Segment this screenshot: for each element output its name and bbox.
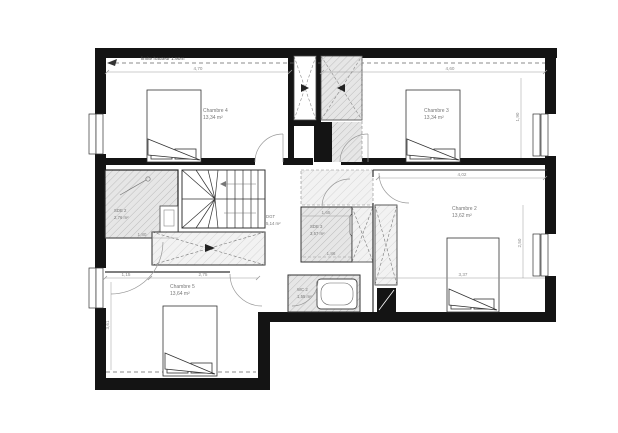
window-left-bottom xyxy=(89,268,96,308)
room-chambre3-area: 13,34 m² xyxy=(424,115,444,121)
room-chambre2-area: 13,62 m² xyxy=(452,213,472,219)
room-wc2-area: 1,55 m² xyxy=(297,294,312,299)
bed-chambre2 xyxy=(447,238,499,312)
duct-right-of-sde3 xyxy=(352,207,373,262)
room-sde2-area: 2,76 m² xyxy=(114,215,129,220)
bed-chambre4 xyxy=(147,90,201,162)
room-sde2 xyxy=(105,170,178,238)
room-dgt-area: 5,14 m² xyxy=(266,221,281,226)
room-chambre2-name: Chambre 2 xyxy=(452,206,477,212)
void-closet-hatched xyxy=(321,56,362,120)
floor-plan-svg: limite hauteur 1.90m xyxy=(0,0,618,433)
height-limit-label: limite hauteur 1.90m xyxy=(141,56,184,62)
dim-ch5-b: 2,75 xyxy=(199,272,208,277)
floor-plan: limite hauteur 1.90m xyxy=(0,0,618,433)
dim-sde3-width: 1,65 xyxy=(322,210,331,215)
room-chambre3-name: Chambre 3 xyxy=(424,108,449,114)
room-dgt-name: DGT xyxy=(266,214,275,219)
room-chambre5-name: Chambre 5 xyxy=(170,284,195,290)
dim-ch5-left: 3,61 xyxy=(105,320,110,329)
room-chambre5-area: 13,64 m² xyxy=(170,291,190,297)
dim-top-left: 4,70 xyxy=(194,66,203,71)
duct-hatched-core xyxy=(332,122,362,162)
dim-ch2-width: 3,37 xyxy=(459,272,468,277)
corridor-hatch-band xyxy=(301,170,373,205)
dim-ch2-top: 4,02 xyxy=(458,172,467,177)
room-chambre4-name: Chambre 4 xyxy=(203,108,228,114)
height-limit-arrow-icon xyxy=(107,59,117,66)
duct-chambre2 xyxy=(375,205,397,312)
dim-sde3-depth: 1,86 xyxy=(327,251,336,256)
dim-ch3-right: 1,90 xyxy=(515,112,520,121)
door-chambre4 xyxy=(255,134,283,162)
dim-ch5-a: 1,15 xyxy=(122,272,131,277)
bed-chambre5 xyxy=(163,306,217,376)
bed-chambre3 xyxy=(406,90,460,162)
bathtub xyxy=(317,279,357,309)
room-sde3-area: 3,57 m² xyxy=(310,231,325,236)
room-sde2-name: SDE 2 xyxy=(114,208,127,213)
void-closet-white xyxy=(294,56,316,120)
dim-top-right: 4,60 xyxy=(446,66,455,71)
room-wc2-name: WC 2 xyxy=(297,287,308,292)
under-slope-zone xyxy=(152,232,265,265)
dim-sde2-width: 1,80 xyxy=(138,232,147,237)
door-chambre2 xyxy=(379,173,409,203)
dim-ch2-right: 2,50 xyxy=(517,238,522,247)
window-right-bottom xyxy=(533,234,540,276)
window-right-top xyxy=(533,114,540,156)
room-sde3-name: SDE 3 xyxy=(310,224,323,229)
staircase xyxy=(182,170,265,228)
window-left-top xyxy=(89,114,96,154)
room-chambre4-area: 13,34 m² xyxy=(203,115,223,121)
